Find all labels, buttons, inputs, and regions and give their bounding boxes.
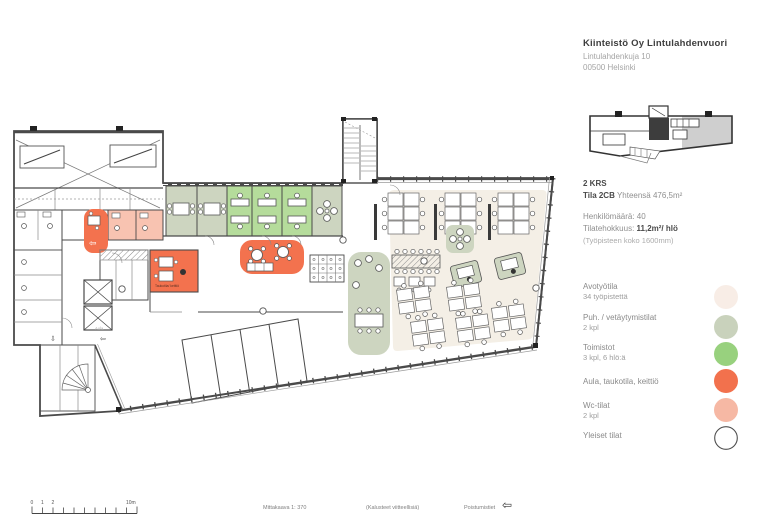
address-line-1: Lintulahdenkuja 10 <box>583 51 650 62</box>
legend-item-offices: Toimistot 3 kpl, 6 hlö:ä <box>583 343 626 363</box>
legend-item-phone-rooms: Puh. / vetäytymistilat 2 kpl <box>583 313 656 333</box>
legend-swatch-common <box>713 425 739 451</box>
zone-break-room: Taukotila/ keittiö <box>150 250 198 292</box>
lockers <box>310 255 344 282</box>
address-line-2: 00500 Helsinki <box>583 62 635 73</box>
legend-item-lobby-kitchen: Aula, taukotila, keittiö <box>583 377 659 387</box>
scale-bar: 0 1 2 10m <box>31 500 138 514</box>
zone-wc <box>108 210 163 240</box>
legend-item-common: Yleiset tilat <box>583 431 622 441</box>
legend-item-open-office: Avotyötila 34 työpistettä <box>583 282 628 302</box>
key-plan <box>585 103 737 165</box>
legend-swatch-wc <box>713 397 739 423</box>
scale-caption: Mittakaava 1: 370 <box>263 505 306 511</box>
zone-room-row <box>163 185 343 237</box>
scale-label-2: 2 <box>52 500 55 506</box>
floor-plan: ⇦ Taukotila/ keittiö <box>0 0 758 531</box>
zone-entry-lobby: ⇦ <box>84 209 108 253</box>
lobby-label: Aula <box>95 326 104 331</box>
scale-label-10m: 10m <box>126 500 136 506</box>
furniture-note: (Kalusteet viitteellisiä) <box>366 505 419 511</box>
legend-swatch-offices <box>713 341 739 367</box>
exit-arrow-down-icon: ⇩ <box>50 335 56 343</box>
stairwell <box>341 117 377 183</box>
legend-swatch-lobby-kitchen <box>713 368 739 394</box>
workstation-note: (Työpisteen koko 1600mm) <box>583 236 673 245</box>
space-id: Tila 2CB <box>583 191 615 200</box>
floorplan-sheet: ⇦ Taukotila/ keittiö <box>0 0 758 531</box>
scale-label-0: 0 <box>31 500 34 506</box>
floor-label: 2 KRS <box>583 179 607 188</box>
legend-swatch-phone-rooms <box>713 314 739 340</box>
efficiency: Tilatehokkuus: 11,2m²/ hlö <box>583 224 678 233</box>
zone-lounge-pod <box>446 225 474 253</box>
efficiency-value: 11,2m²/ hlö <box>637 224 678 233</box>
zone-phone-lounge <box>348 252 390 355</box>
legend-swatch-open-office <box>713 284 739 310</box>
scale-label-1: 1 <box>41 500 44 506</box>
break-room-label: Taukotila/ keittiö <box>155 284 179 288</box>
space-total: Yhteensä 476,5m² <box>615 191 682 200</box>
headcount: Henkilömäärä: 40 <box>583 212 646 221</box>
zone-kitchen <box>240 240 304 274</box>
company-name: Kiinteistö Oy Lintulahdenvuori <box>583 38 753 49</box>
exit-arrow-icon: ⇦ <box>89 238 97 248</box>
exit-route-arrow-icon: ⇦ <box>502 499 512 511</box>
space-summary: Tila 2CB Yhteensä 476,5m² <box>583 191 682 200</box>
efficiency-label: Tilatehokkuus: <box>583 224 637 233</box>
legend-item-wc: Wc-tilat 2 kpl <box>583 401 610 421</box>
exit-arrow-left-icon: ⇦ <box>100 336 106 343</box>
exit-routes-label: Poistumistiet <box>464 505 495 511</box>
